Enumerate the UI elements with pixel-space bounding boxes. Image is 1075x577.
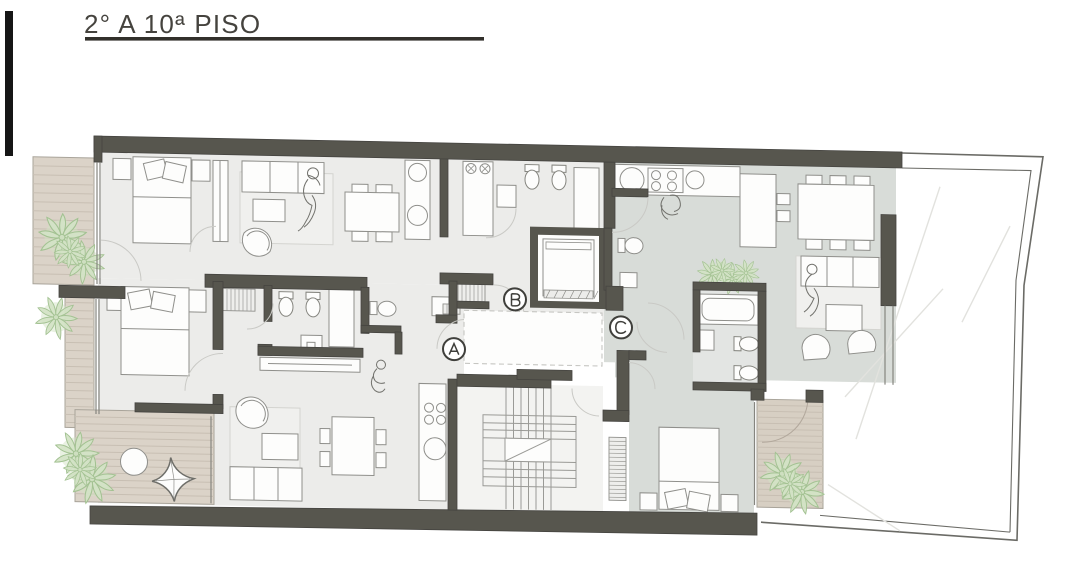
svg-text:2° A 10ª PISO: 2° A 10ª PISO: [84, 9, 261, 39]
